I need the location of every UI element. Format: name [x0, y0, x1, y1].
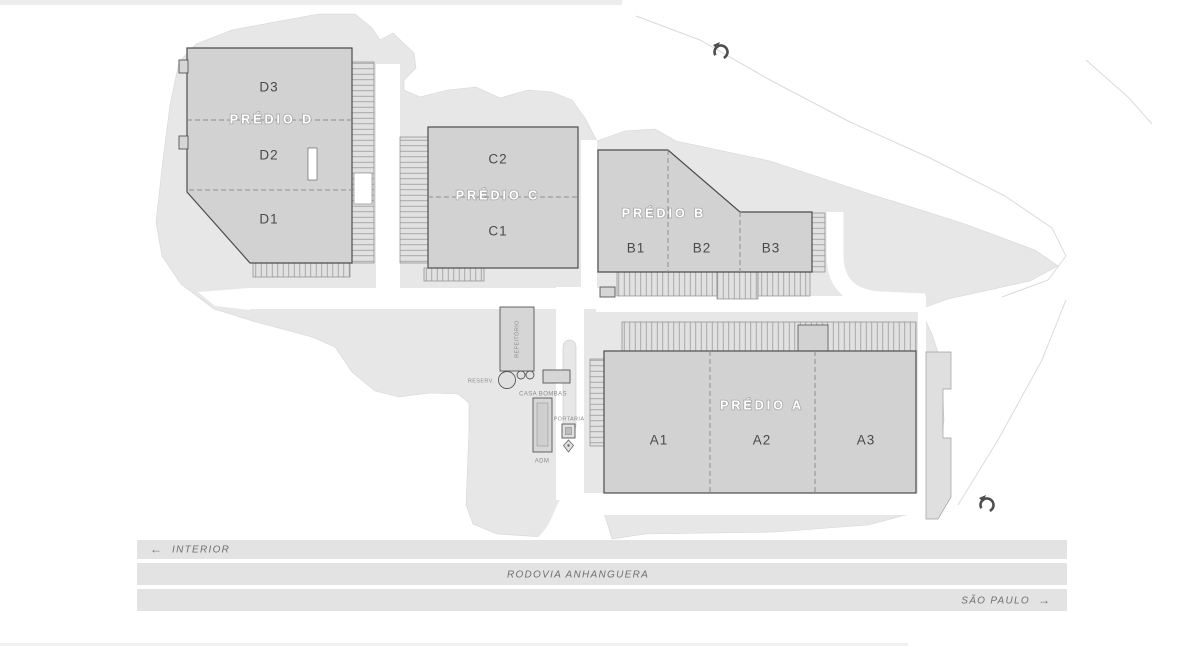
adm-building-inner — [537, 403, 548, 446]
north-arrow-icon — [978, 495, 996, 514]
building-d-tab — [179, 60, 188, 73]
direction-interior-label: INTERIOR — [172, 545, 230, 556]
direction-sao-paulo-label: SÃO PAULO — [961, 594, 1030, 607]
dock-notch — [354, 173, 372, 204]
building-a: PRÉDIO A A1 A2 A3 — [604, 351, 916, 493]
refeitorio-label: REFEITÓRIO — [513, 320, 520, 358]
water-tank-large — [499, 372, 516, 389]
dock-strip — [352, 62, 374, 263]
dock-strip — [758, 272, 810, 296]
casa-bombas-label: CASA BOMBAS — [519, 392, 567, 398]
highway-lane-inbound — [137, 540, 1067, 559]
highway: ← INTERIOR RODOVIA ANHANGUERA SÃO PAULO … — [0, 540, 1067, 646]
pump-house — [543, 370, 570, 383]
unit-region-a3[interactable] — [815, 351, 916, 493]
dock-strip — [253, 263, 350, 277]
building-d: D3 PRÉDIO D D2 D1 — [179, 48, 352, 263]
internal-road — [918, 312, 926, 494]
highway-lane-outbound — [137, 589, 1067, 611]
unit-region-d3[interactable] — [187, 48, 352, 120]
unit-region-c1[interactable] — [428, 197, 578, 268]
internal-road — [250, 288, 600, 309]
unit-region-b1[interactable] — [598, 150, 668, 272]
arrow-left-icon: ← — [150, 542, 162, 556]
site-plan-canvas: D3 PRÉDIO D D2 D1 C2 PRÉDIO C C1 PRÉDIO … — [0, 0, 1185, 650]
page-top-band — [0, 0, 622, 5]
building-d-tab — [179, 136, 188, 149]
contour-line — [958, 300, 1066, 505]
unit-region-b3[interactable] — [740, 212, 812, 272]
internal-road — [584, 493, 936, 515]
unit-region-d1[interactable] — [200, 190, 352, 263]
highway-name-label: RODOVIA ANHANGUERA — [507, 570, 649, 581]
dock-strip — [424, 268, 484, 281]
adm-label: ADM — [535, 459, 550, 465]
unit-region-a2[interactable] — [710, 351, 815, 493]
dock-notch — [798, 325, 828, 351]
dock-strip — [717, 272, 758, 299]
dock-strip — [590, 359, 604, 446]
portaria-booth-inner — [566, 428, 572, 435]
unit-region-b2[interactable] — [668, 165, 740, 272]
unit-region-c2[interactable] — [428, 127, 578, 197]
building-c: C2 PRÉDIO C C1 — [428, 127, 578, 268]
arrow-right-icon: → — [1038, 593, 1050, 607]
water-tank-small — [517, 371, 525, 379]
building-b-block — [600, 287, 615, 297]
page-bottom-band — [0, 643, 908, 646]
water-tank-small — [526, 371, 534, 379]
internal-road — [376, 64, 400, 292]
dock-strip — [622, 322, 916, 351]
reservatorio-label: RESERV. — [468, 378, 494, 384]
internal-road — [581, 140, 597, 292]
unit-region-d2[interactable] — [187, 120, 352, 190]
contour-line — [1086, 60, 1152, 124]
dock-strip — [812, 213, 825, 272]
dock-strip — [400, 137, 428, 263]
ramp-structure — [926, 352, 951, 519]
portaria-label: PORTARIA — [554, 416, 585, 422]
gate-marker-dot — [567, 444, 569, 446]
unit-region-a1[interactable] — [604, 351, 710, 493]
dock-strip — [617, 272, 717, 296]
site-plan-page: D3 PRÉDIO D D2 D1 C2 PRÉDIO C C1 PRÉDIO … — [0, 0, 1185, 650]
